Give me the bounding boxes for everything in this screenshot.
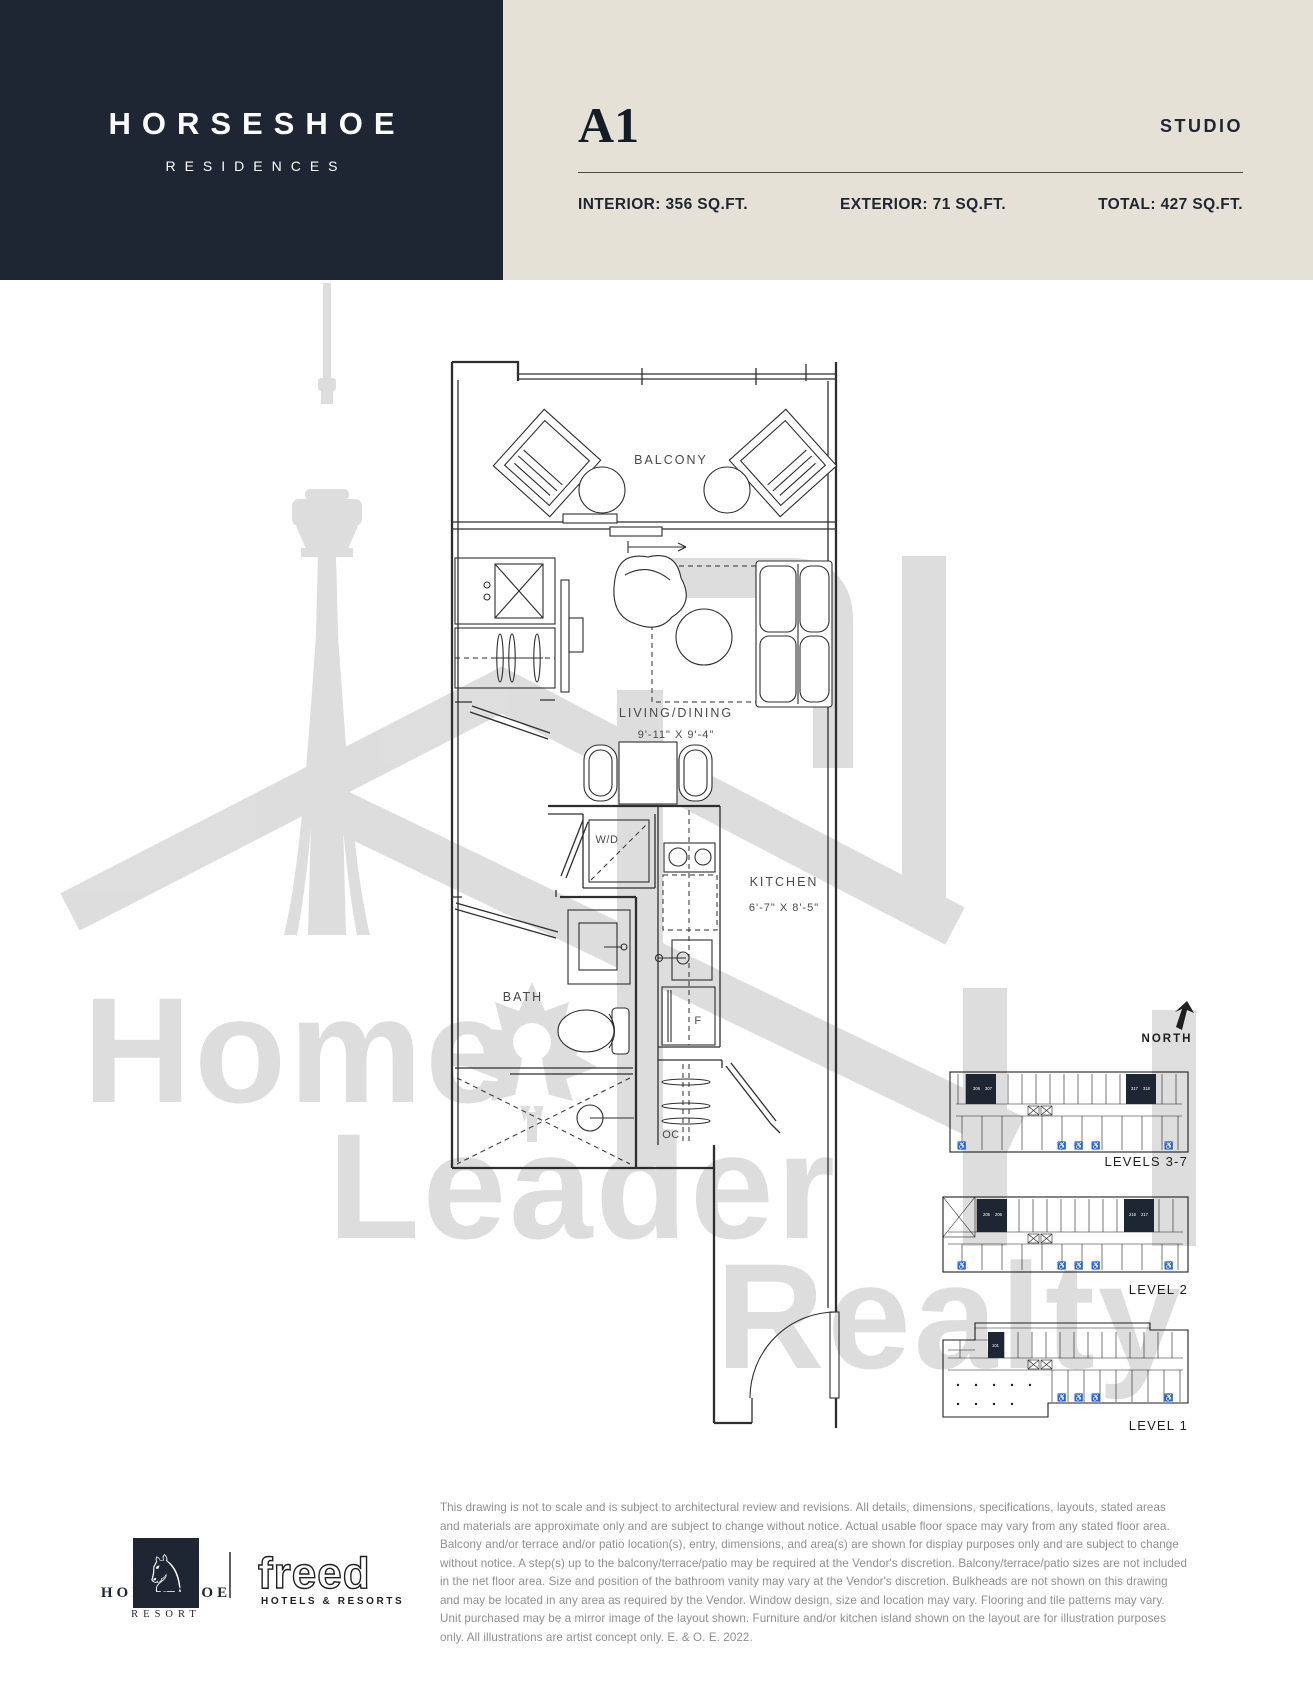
unit-number: 216 bbox=[1129, 1212, 1137, 1217]
unit-number: 307 bbox=[985, 1086, 993, 1091]
wall-top-stub bbox=[452, 362, 518, 381]
keyplan-label-level2: LEVEL 2 bbox=[1129, 1282, 1188, 1297]
unit-number: 306 bbox=[973, 1086, 981, 1091]
balcony-table-right bbox=[704, 467, 750, 513]
north-label: NORTH bbox=[1142, 1033, 1193, 1045]
wheelchair-icon: ♿ bbox=[1057, 1141, 1066, 1150]
footer-logos: ♘ HORSESHOE RESORT freed HOTELS & RESORT… bbox=[101, 1538, 404, 1620]
unit-number: 318 bbox=[1143, 1086, 1151, 1091]
sliding-door-panel-1 bbox=[563, 514, 617, 523]
toilet bbox=[558, 1008, 629, 1054]
wheelchair-icon: ♿ bbox=[1074, 1261, 1083, 1270]
wheelchair-icon: ♿ bbox=[1164, 1261, 1173, 1270]
freed-logo: freed bbox=[258, 1549, 371, 1598]
unit-number: 205 bbox=[983, 1212, 991, 1217]
balcony-label: BALCONY bbox=[634, 453, 708, 467]
watermark-word-3: Realty bbox=[716, 1232, 1184, 1400]
unit-number: 101 bbox=[992, 1343, 1000, 1348]
dining-chair-right bbox=[679, 745, 712, 801]
coffee-table bbox=[676, 609, 732, 665]
disclaimer-text: This drawing is not to scale and is subj… bbox=[440, 1499, 1187, 1647]
oc-label: OC bbox=[662, 1129, 680, 1141]
dining-chair-left bbox=[584, 745, 617, 801]
resort-name: HORSESHOE bbox=[101, 1585, 231, 1601]
wheelchair-icon: ♿ bbox=[1057, 1261, 1066, 1270]
slide-direction-arrow bbox=[628, 541, 686, 553]
unit-number: 217 bbox=[1141, 1212, 1149, 1217]
bath-label: BATH bbox=[503, 990, 543, 1004]
wheelchair-icon: ♿ bbox=[1091, 1393, 1100, 1402]
wheelchair-icon: ♿ bbox=[1074, 1141, 1083, 1150]
floorplan-page: HORSESHOE RESIDENCES A1 STUDIO INTERIOR:… bbox=[0, 0, 1313, 1688]
unit-number: 206 bbox=[995, 1212, 1003, 1217]
balcony-railing bbox=[518, 364, 836, 385]
kitchen-dim: 6'-7" X 8'-5" bbox=[749, 902, 819, 914]
wheelchair-icon: ♿ bbox=[1091, 1141, 1100, 1150]
wheelchair-icon: ♿ bbox=[957, 1141, 966, 1150]
wheelchair-icon: ♿ bbox=[1057, 1393, 1066, 1402]
wd-door bbox=[561, 820, 588, 878]
watermark-graphics: Home Leader Realty bbox=[70, 283, 1196, 1400]
watermark-bar-4 bbox=[1152, 1010, 1196, 1246]
resort-sub: RESORT bbox=[131, 1609, 201, 1620]
living-dim: 9'-11" X 9'-4" bbox=[638, 729, 715, 741]
wheelchair-icon: ♿ bbox=[1164, 1393, 1173, 1402]
sofa bbox=[756, 561, 832, 707]
keyplan-label-level1: LEVEL 1 bbox=[1129, 1418, 1188, 1433]
watermark-bar-1 bbox=[902, 556, 946, 906]
wheelchair-icon: ♿ bbox=[1164, 1141, 1173, 1150]
keyplan-label-levels37: LEVELS 3-7 bbox=[1104, 1154, 1188, 1169]
highlighted-unit-block bbox=[977, 1199, 1007, 1232]
wheelchair-icon: ♿ bbox=[1074, 1393, 1083, 1402]
living-label: LIVING/DINING bbox=[619, 706, 733, 720]
tv-bracket bbox=[569, 618, 583, 652]
kitchen-label: KITCHEN bbox=[750, 875, 819, 889]
wd-label: W/D bbox=[596, 834, 619, 846]
sliding-door-panel-2 bbox=[610, 527, 662, 536]
wheelchair-icon: ♿ bbox=[957, 1261, 966, 1270]
tv-panel bbox=[561, 580, 569, 692]
balcony-table-left bbox=[579, 467, 625, 513]
wheelchair-icon: ♿ bbox=[1091, 1261, 1100, 1270]
lounge-chair bbox=[614, 556, 686, 628]
floorplan-drawing: Home Leader Realty bbox=[0, 0, 1313, 1688]
dining-table bbox=[619, 742, 677, 804]
freed-sub: HOTELS & RESORTS bbox=[261, 1596, 404, 1607]
fridge-label: F bbox=[694, 1015, 701, 1027]
unit-number: 317 bbox=[1131, 1086, 1139, 1091]
upper-cabinets bbox=[663, 875, 717, 930]
elevator-icons bbox=[1028, 1106, 1052, 1115]
